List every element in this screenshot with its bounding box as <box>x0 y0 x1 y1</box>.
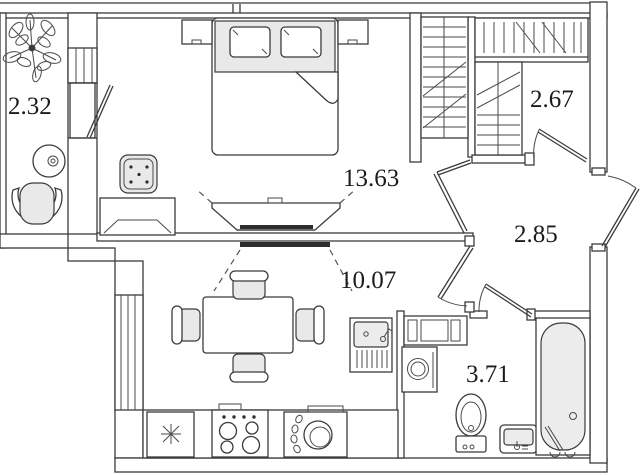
balcony-area-label: 2.32 <box>8 93 52 120</box>
closet-door <box>534 129 587 162</box>
bedroom-tv <box>240 225 313 229</box>
toilet <box>456 394 486 452</box>
pillow <box>281 27 321 57</box>
pillow <box>230 27 270 57</box>
right-wall-upper <box>590 2 607 172</box>
entrance-sill-top <box>592 168 605 175</box>
door-leaf <box>485 287 531 317</box>
door-leaf <box>486 284 532 314</box>
washing-machine <box>402 347 437 392</box>
plant <box>2 14 62 83</box>
door-leaf <box>605 189 639 247</box>
closet-area-label: 2.67 <box>530 86 574 113</box>
door-leaf <box>441 248 473 299</box>
hallway-chamfer-wall-lower <box>437 172 467 231</box>
kitchen-counter <box>143 404 398 458</box>
bedroom-area-label: 13.63 <box>343 165 399 192</box>
right-wall-lower <box>590 247 607 463</box>
door-swing-arc <box>438 297 467 306</box>
fridge <box>147 412 194 457</box>
left-wall <box>0 13 6 248</box>
drainer-lines <box>357 350 387 368</box>
closet-shelves <box>475 62 522 155</box>
bottom-wall <box>115 458 607 472</box>
kitchen-sink-unit <box>350 318 392 372</box>
stove <box>212 404 268 457</box>
tv-view-line <box>196 189 212 203</box>
chair-bottom <box>230 354 268 382</box>
entrance-door <box>602 176 639 247</box>
wardrobe-strip <box>421 17 468 138</box>
kitchen-living-area-label: 10.07 <box>340 267 396 294</box>
bathroom-area-label: 3.71 <box>466 361 510 388</box>
closet-hanging-rail <box>475 18 588 62</box>
bed <box>212 18 338 155</box>
bedroom-right-wall <box>410 13 421 162</box>
closet-door-jamb <box>525 153 534 165</box>
door-leaf <box>602 188 636 246</box>
closet-bottom-wall <box>472 155 533 163</box>
chair-top <box>230 271 268 299</box>
nightstand-left <box>182 20 212 44</box>
door-leaf <box>539 129 587 159</box>
hallway-area-label: 2.85 <box>514 221 558 248</box>
chair-left <box>172 306 200 344</box>
balcony-door <box>68 83 113 138</box>
bathtub <box>536 318 590 457</box>
living-room-tv <box>240 242 330 247</box>
chair-right <box>296 306 324 344</box>
snowflake-icon <box>161 424 181 444</box>
kitchen-living-door <box>438 246 473 306</box>
floor-plan-drawing: 2.32 13.63 2.67 2.85 10.07 3.71 <box>0 0 640 475</box>
balcony-window <box>68 48 97 83</box>
bathroom-cabinet <box>404 316 467 345</box>
kitchen-door-jamb-bottom <box>465 302 474 312</box>
balcony-bottom-wall <box>0 234 68 248</box>
door-swing-arc <box>479 284 486 312</box>
step-wall <box>68 248 115 261</box>
wardrobe-closet-divider-wall <box>468 17 475 157</box>
hallway-chamfer-wall-lower <box>434 174 464 233</box>
window-frame <box>115 295 143 410</box>
door-leaf <box>538 132 586 162</box>
pouf <box>120 155 157 193</box>
nightstand-right <box>338 20 368 44</box>
hallway-chamfer-wall-upper <box>437 160 470 172</box>
bedroom-tv-stand <box>196 189 356 230</box>
kitchen-prep-sink <box>284 406 347 457</box>
floor-plan: 2.32 13.63 2.67 2.85 10.07 3.71 <box>0 0 640 475</box>
living-room-window <box>115 295 143 410</box>
door-opening <box>70 83 95 138</box>
balcony-table <box>33 145 65 177</box>
dining-table <box>203 297 293 353</box>
desk <box>100 198 175 235</box>
door-swing-arc <box>608 176 636 188</box>
kitchen-door-jamb-top <box>465 236 474 246</box>
balcony-chair <box>12 183 62 224</box>
bedroom <box>100 18 368 235</box>
window-frame <box>68 48 97 83</box>
toilet-tank <box>456 436 486 452</box>
door-leaf <box>438 246 470 297</box>
washbasin <box>500 425 537 453</box>
hallway-chamfer-wall-upper <box>438 163 471 175</box>
